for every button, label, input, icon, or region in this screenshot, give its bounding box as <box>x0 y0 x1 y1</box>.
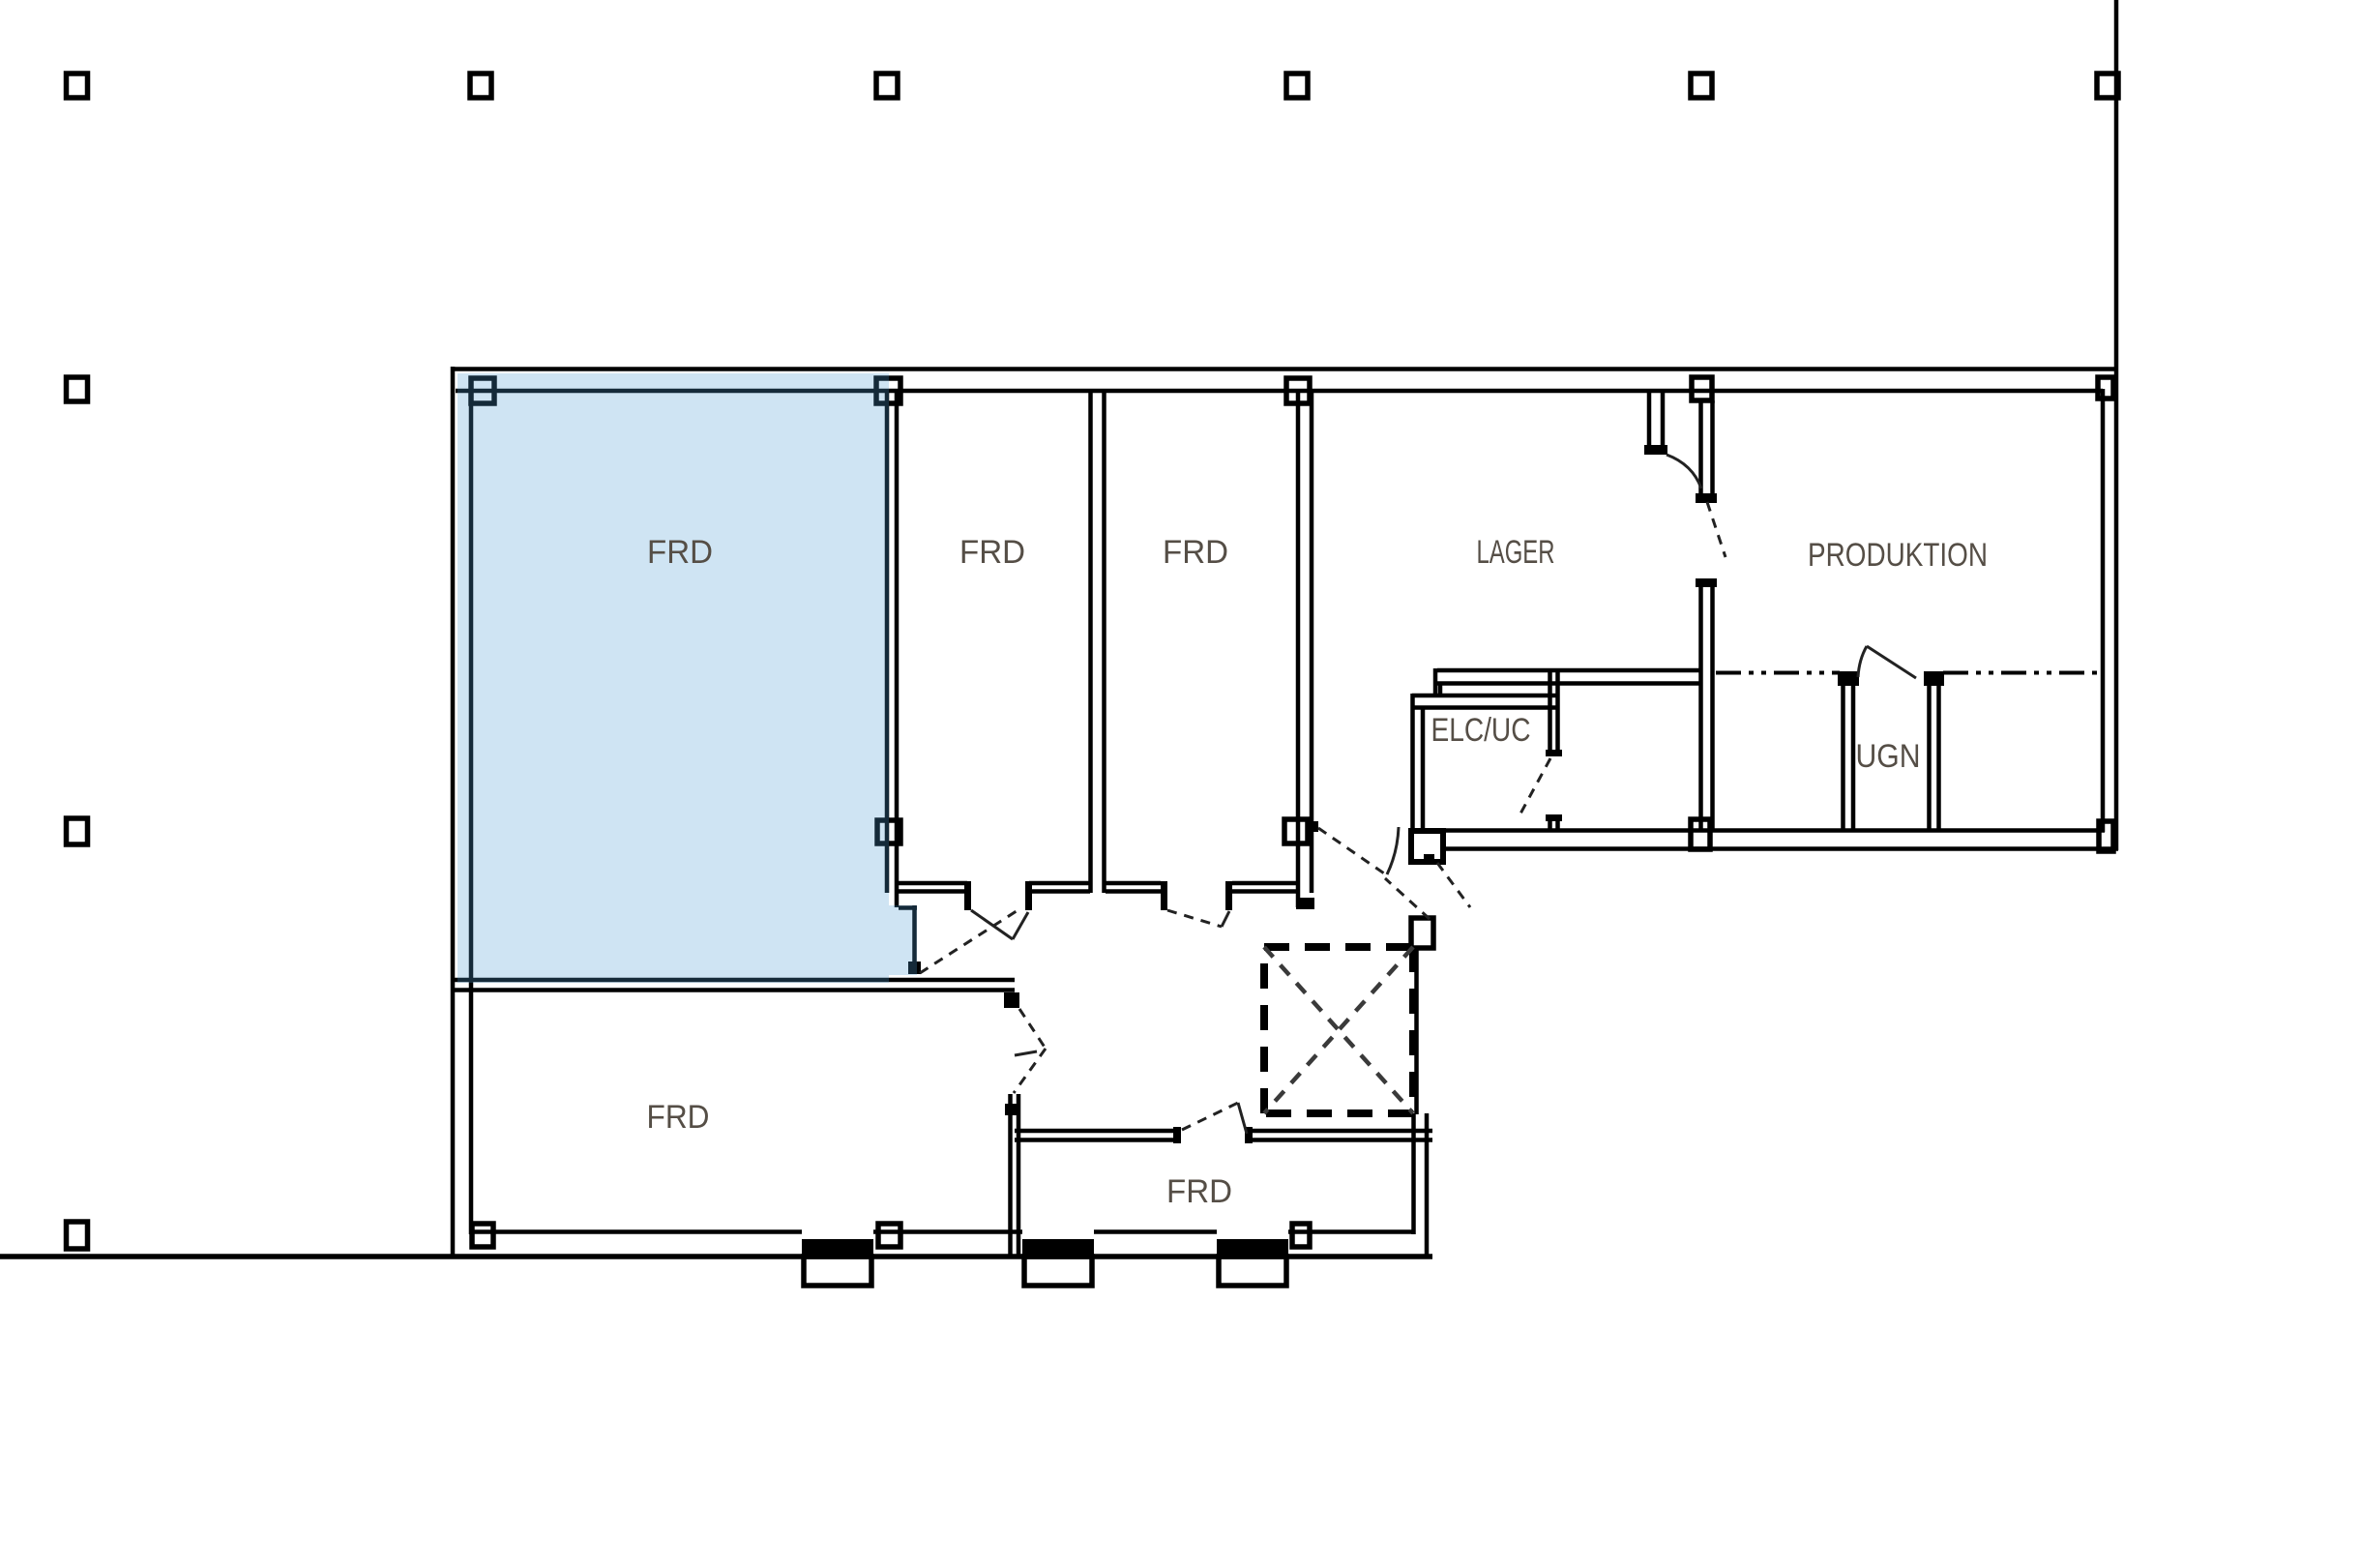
svg-text:FRD: FRD <box>1166 1173 1232 1210</box>
svg-text:PRODUKTION: PRODUKTION <box>1808 537 1988 574</box>
svg-text:ELC/UC: ELC/UC <box>1431 712 1531 749</box>
svg-text:FRD: FRD <box>647 534 713 571</box>
svg-text:FRD: FRD <box>1163 534 1228 571</box>
svg-text:LAGER: LAGER <box>1477 534 1555 571</box>
svg-text:FRD: FRD <box>959 534 1025 571</box>
svg-text:UGN: UGN <box>1856 738 1921 775</box>
svg-text:FRD: FRD <box>647 1099 710 1136</box>
